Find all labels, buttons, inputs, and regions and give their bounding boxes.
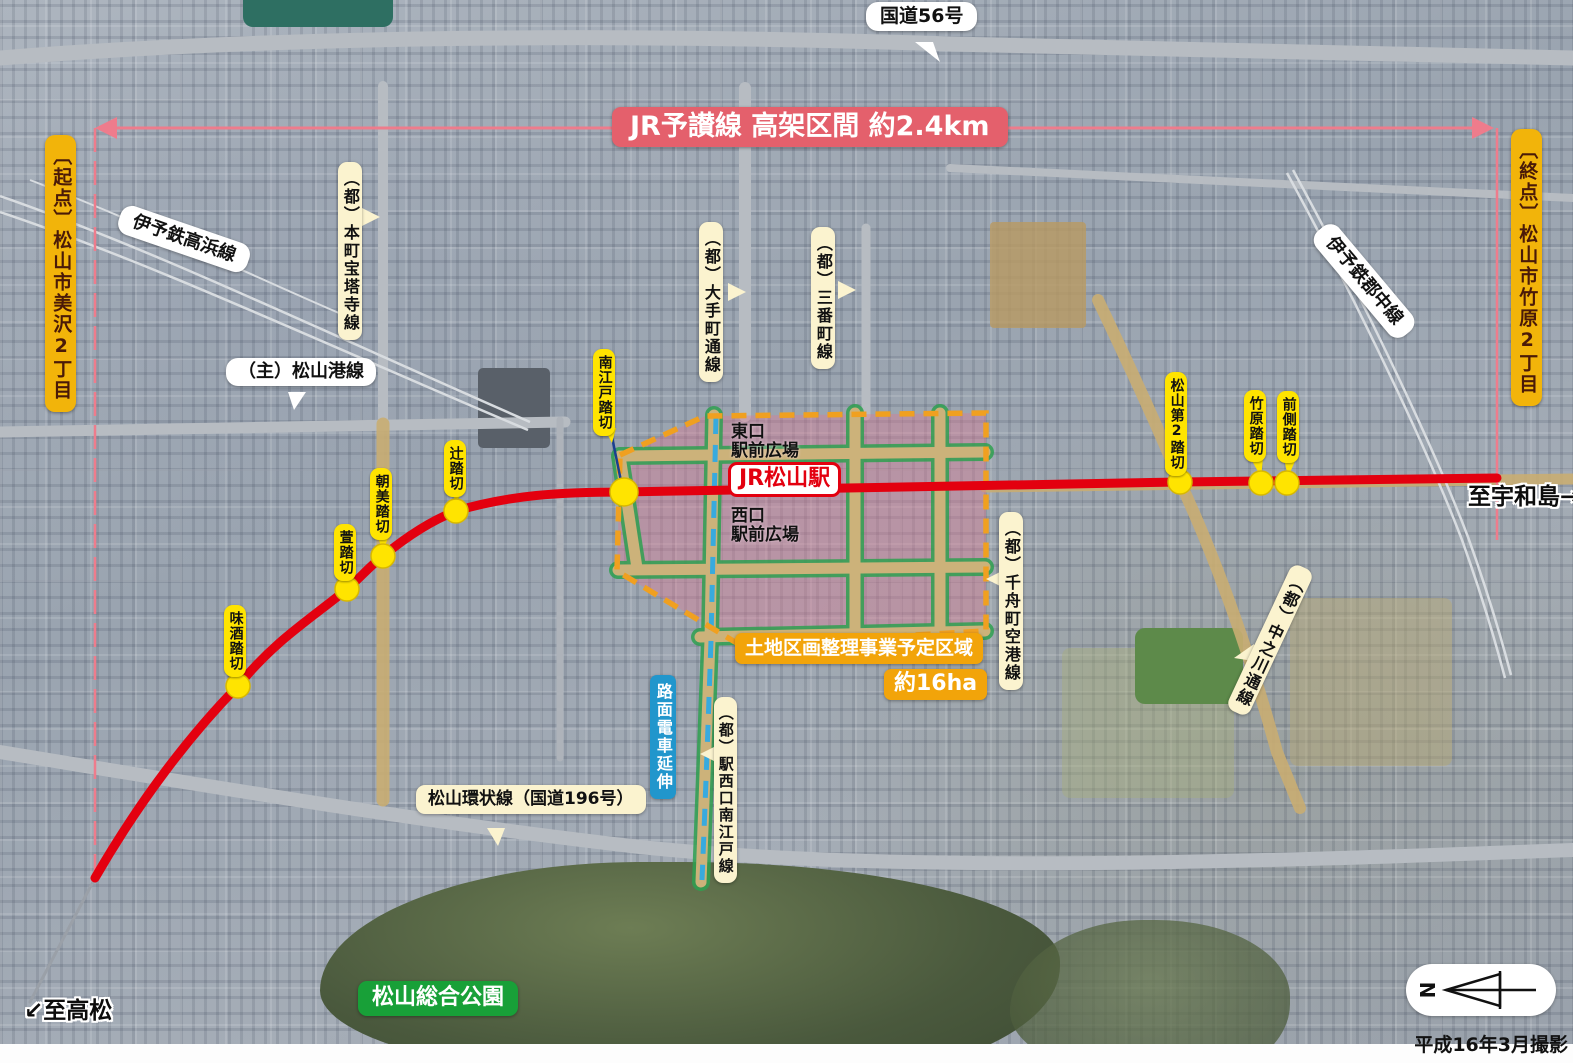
chifunemachi-kuko-line-label: （都）千舟町空港線 xyxy=(999,512,1023,690)
land-readjustment-label: 土地区画整理事業予定区域 xyxy=(735,633,983,664)
crossing-label-takehara: 竹原踏切 xyxy=(1244,390,1266,462)
crossing-label-minamiedo: 南江戸踏切 xyxy=(593,349,615,436)
route56-label: 国道56号 xyxy=(866,2,977,31)
start-point-label: 〔起点〕松山市美沢2丁目 xyxy=(45,135,76,412)
west-plaza-label: 西口 駅前広場 xyxy=(731,507,799,545)
east-plaza-label: 東口 駅前広場 xyxy=(731,423,799,461)
crossing-label-misake: 味酒踏切 xyxy=(224,605,246,677)
ekinishiguchi-minamiedo-line-label: （都）駅西口南江戸線 xyxy=(714,697,737,883)
project-area-size-label: 約16ha xyxy=(884,669,987,700)
tram-extension-label: 路面電車延伸 xyxy=(650,675,676,799)
crossing-label-maegawa: 前側踏切 xyxy=(1277,391,1299,463)
station-label: JR松山駅 xyxy=(728,462,841,497)
hommachi-hotoji-line-label: （都）本町宝塔寺線 xyxy=(338,162,362,340)
crossing-label-tsuji: 辻踏切 xyxy=(444,440,466,497)
aerial-plan-map: JR予讃線 高架区間 約2.4km 〔起点〕松山市美沢2丁目 〔終点〕松山市竹原… xyxy=(0,0,1573,1063)
otemachi-dori-line-label: （都）大手町通線 xyxy=(699,222,723,382)
crossing-label-kaya: 萱踏切 xyxy=(334,524,356,581)
photo-credit: 平成16年3月撮影 xyxy=(1408,1035,1568,1056)
bottom-margin-strip xyxy=(0,1044,1573,1063)
to-uwajima-label: 至宇和島→ xyxy=(1468,485,1573,511)
matsuyama-port-line-label: （主）松山港線 xyxy=(226,358,376,386)
sambancho-line-label: （都）三番町線 xyxy=(811,227,835,369)
elevated-section-banner: JR予讃線 高架区間 約2.4km xyxy=(612,107,1008,147)
end-point-label: 〔終点〕松山市竹原2丁目 xyxy=(1511,129,1542,406)
crossing-label-asami: 朝美踏切 xyxy=(370,468,392,540)
crossing-label-matsuyama-no2: 松山第2踏切 xyxy=(1165,372,1187,476)
to-takamatsu-label: ↙至高松 xyxy=(24,999,112,1025)
north-arrow: N xyxy=(1406,964,1556,1016)
park-label: 松山総合公園 xyxy=(358,981,518,1016)
kanjo-line-196-label: 松山環状線（国道196号） xyxy=(416,785,646,814)
north-letter: N xyxy=(1416,982,1440,999)
